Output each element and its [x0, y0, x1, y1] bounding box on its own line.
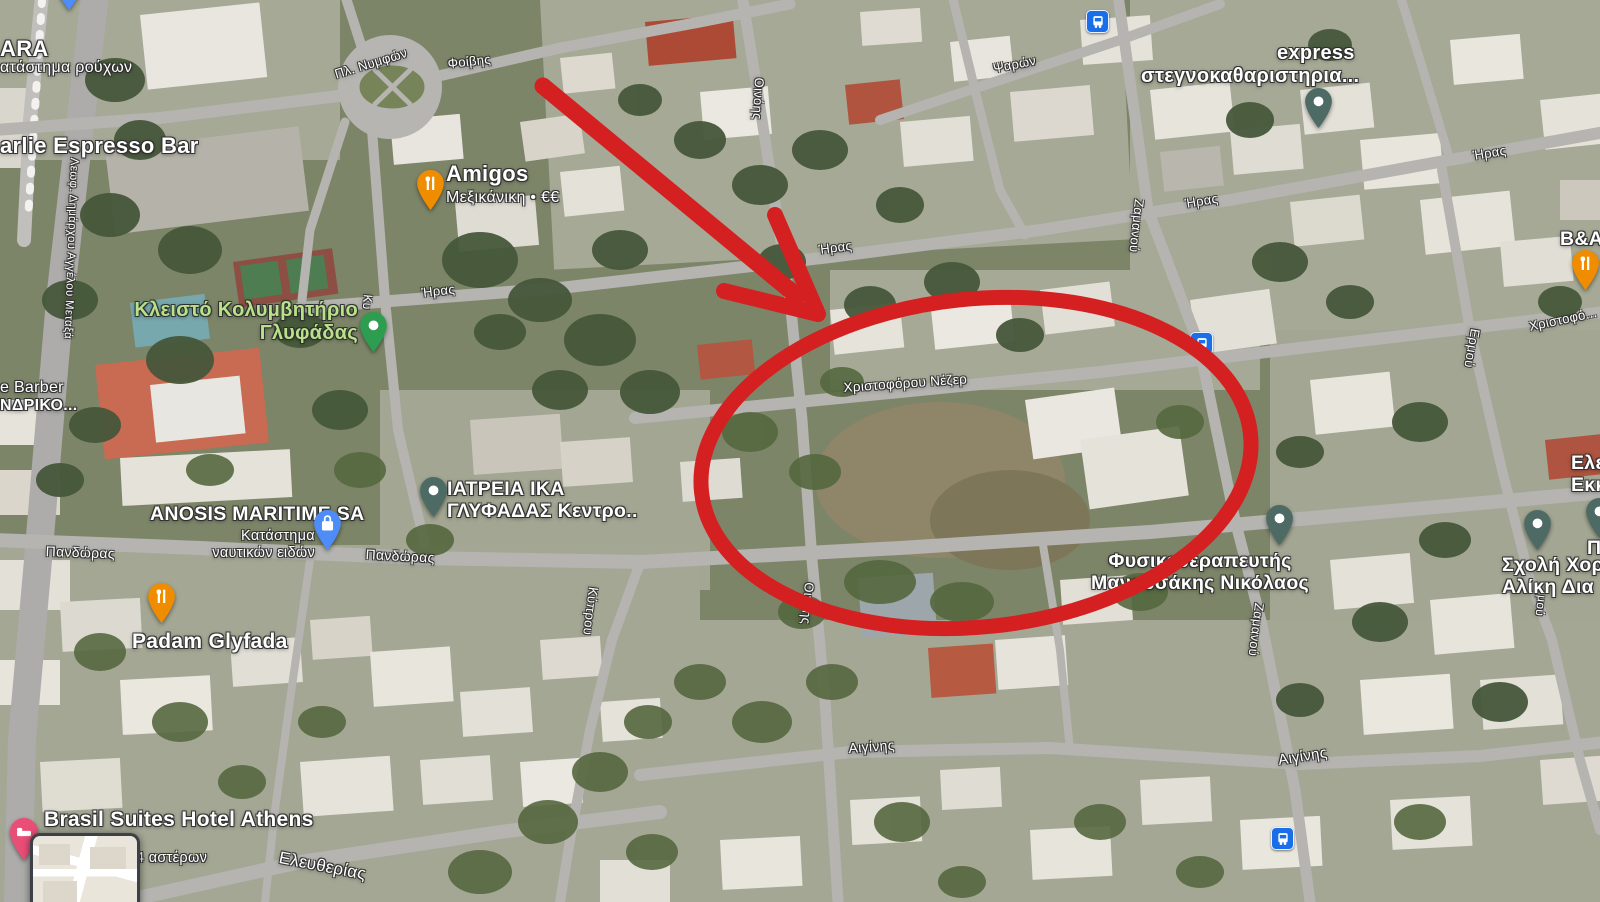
poi-sublabel-anosis-line1: Κατάστημα [160, 528, 315, 545]
poi-label-partial-pi: Π [1587, 537, 1600, 559]
place-pin-physio[interactable] [1266, 505, 1293, 545]
poi-label-dance-line2: Αλίκη Δια [1502, 576, 1600, 598]
poi-label-iatreia[interactable]: ΙΑΤΡΕΙΑ ΙΚΑ ΓΛΥΦΑΔΑΣ Κεντρο.. [447, 478, 638, 523]
aerial-imagery [0, 0, 1600, 902]
poi-label-express-line1[interactable]: express [1277, 42, 1355, 65]
poi-label-physio-line1: Φυσικοθεραπευτής [1086, 550, 1314, 572]
bus-stop-icon-3[interactable] [1271, 827, 1294, 850]
poi-label-church-line1: Ελε [1571, 452, 1600, 474]
poi-label-express-line2: στεγνοκαθαριστηρια... [1141, 65, 1359, 88]
inset-map[interactable] [30, 833, 140, 902]
poi-label-iatreia-line2: ΓΛΥΦΑΔΑΣ Κεντρο.. [447, 500, 638, 522]
aerial-map[interactable]: Πλ. Νυμφών Φοίβης Ήρας Ήρας Ήρας Ήρας Ψα… [0, 0, 1600, 902]
bus-stop-icon-1[interactable] [1086, 10, 1109, 33]
place-pin-partial-right[interactable] [1586, 498, 1600, 538]
poi-label-pool[interactable]: Κλειστό Κολυμβητήριο Γλυφάδας [130, 299, 358, 345]
street-label-oinois-1: Οινόης [749, 77, 766, 120]
street-label-aiginis-1: Αιγίνης [848, 737, 895, 756]
street-label-oinois-2: Οινόης [797, 582, 816, 625]
poi-label-barber-line2: ΝΔΡΙΚΟ... [0, 397, 77, 415]
street-label-pandoras-1: Πανδώρας [45, 543, 115, 561]
restaurant-pin-padam[interactable] [148, 583, 175, 623]
poi-label-physio[interactable]: Φυσικοθεραπευτής Μανουσάκης Νικόλαος [1086, 550, 1314, 595]
place-pin-express[interactable] [1305, 88, 1332, 128]
poi-label-espresso-bar[interactable]: arlie Espresso Bar [0, 133, 199, 158]
poi-label-church[interactable]: Ελε Εκκ [1571, 452, 1600, 497]
pin-partial-top-edge [55, 0, 82, 8]
bus-stop-icon-2[interactable] [1190, 332, 1213, 355]
restaurant-pin-ba[interactable] [1572, 250, 1599, 290]
poi-sublabel-amigos: Μεξικάνικη • €€ [446, 189, 559, 207]
poi-label-church-line2: Εκκ [1571, 474, 1600, 496]
poi-label-amigos[interactable]: Amigos [446, 161, 528, 186]
poi-sublabel-anosis-line2: ναυτικών ειδών [160, 545, 315, 562]
poi-label-dance-line1: Σχολή Χορ [1502, 554, 1600, 576]
poi-label-ba[interactable]: B&A [1560, 228, 1600, 250]
poi-label-pool-line1: Κλειστό Κολυμβητήριο [130, 299, 358, 322]
pool-pin-kolymvitirio[interactable] [360, 312, 387, 352]
poi-label-zara[interactable]: ARA [0, 36, 49, 61]
place-pin-dance-school[interactable] [1524, 510, 1551, 550]
street-label-kyprou-partial: Κυ [359, 294, 374, 310]
shopping-pin-anosis[interactable] [314, 510, 341, 550]
poi-label-physio-line2: Μανουσάκης Νικόλαος [1086, 572, 1314, 594]
poi-sublabel-anosis: Κατάστημα ναυτικών ειδών [160, 528, 315, 561]
poi-label-barber-line1[interactable]: e Barber [0, 379, 64, 397]
poi-label-dance-school[interactable]: Σχολή Χορ Αλίκη Δια [1502, 554, 1600, 599]
poi-label-brasil-hotel[interactable]: Brasil Suites Hotel Athens [44, 808, 314, 832]
poi-label-iatreia-line1: ΙΑΤΡΕΙΑ ΙΚΑ [447, 478, 638, 500]
poi-label-pool-line2: Γλυφάδας [130, 322, 358, 345]
poi-label-padam[interactable]: Padam Glyfada [132, 630, 288, 654]
poi-sublabel-brasil-hotel: 4 αστέρων [136, 850, 207, 867]
place-pin-iatreia[interactable] [420, 477, 447, 517]
poi-sublabel-zara: ατάστημα ρούχων [0, 59, 132, 77]
restaurant-pin-amigos[interactable] [417, 170, 444, 210]
